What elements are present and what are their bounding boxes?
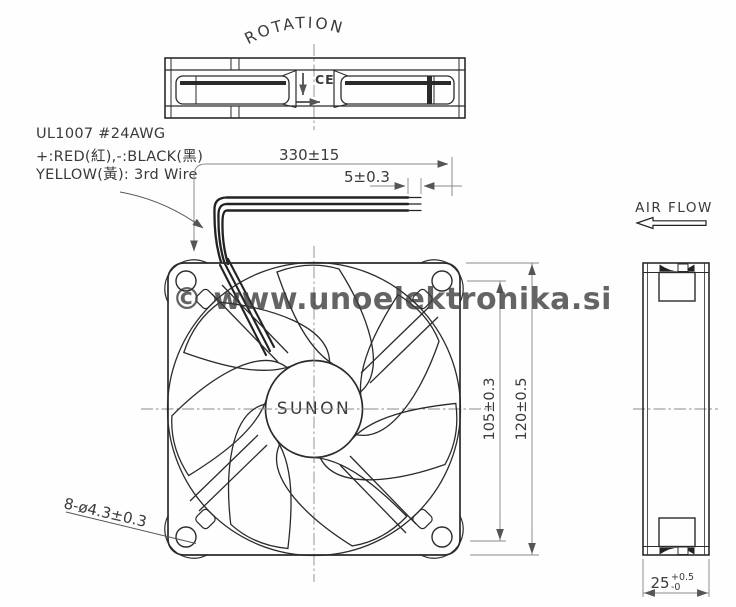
top-inlet-cutout: [659, 273, 695, 302]
dim-wire-length-text: 330±15: [279, 146, 339, 164]
fan-technical-drawing: UL1007 #24AWG +:RED(紅),-:BLACK(黑) YELLOW…: [0, 0, 736, 607]
wire-spec-leader: [120, 192, 203, 228]
rotation-text: ROTATION: [242, 14, 347, 48]
top-view: [165, 58, 465, 118]
dim-strip-length-text: 5±0.3: [344, 168, 390, 186]
dim-depth-tol-minus: -0: [671, 582, 680, 593]
dim-mounting-holes-text: 8-ø4.3±0.3: [62, 494, 148, 531]
svg-text:ROTATION: ROTATION: [242, 14, 347, 48]
dim-hole-pitch-text: 105±0.3: [482, 378, 498, 441]
air-flow-label: AIR FLOW: [635, 200, 713, 216]
drawing-linework: ROTATION: [0, 0, 736, 607]
air-flow-arrow: [637, 218, 706, 229]
dim-frame-size-text: 120±0.5: [514, 378, 530, 441]
watermark-text: © www.unoelektronika.si: [172, 282, 612, 317]
blade-section-left: [176, 76, 289, 104]
dim-depth-value: 25: [650, 574, 669, 592]
strut-section-bar: [427, 76, 432, 104]
lead-wires: [214, 198, 421, 356]
bottom-inlet-cutout: [659, 518, 695, 547]
ce-mark: CE: [315, 72, 335, 87]
rotation-label: ROTATION: [242, 14, 347, 48]
blade-section-right: [341, 76, 454, 104]
